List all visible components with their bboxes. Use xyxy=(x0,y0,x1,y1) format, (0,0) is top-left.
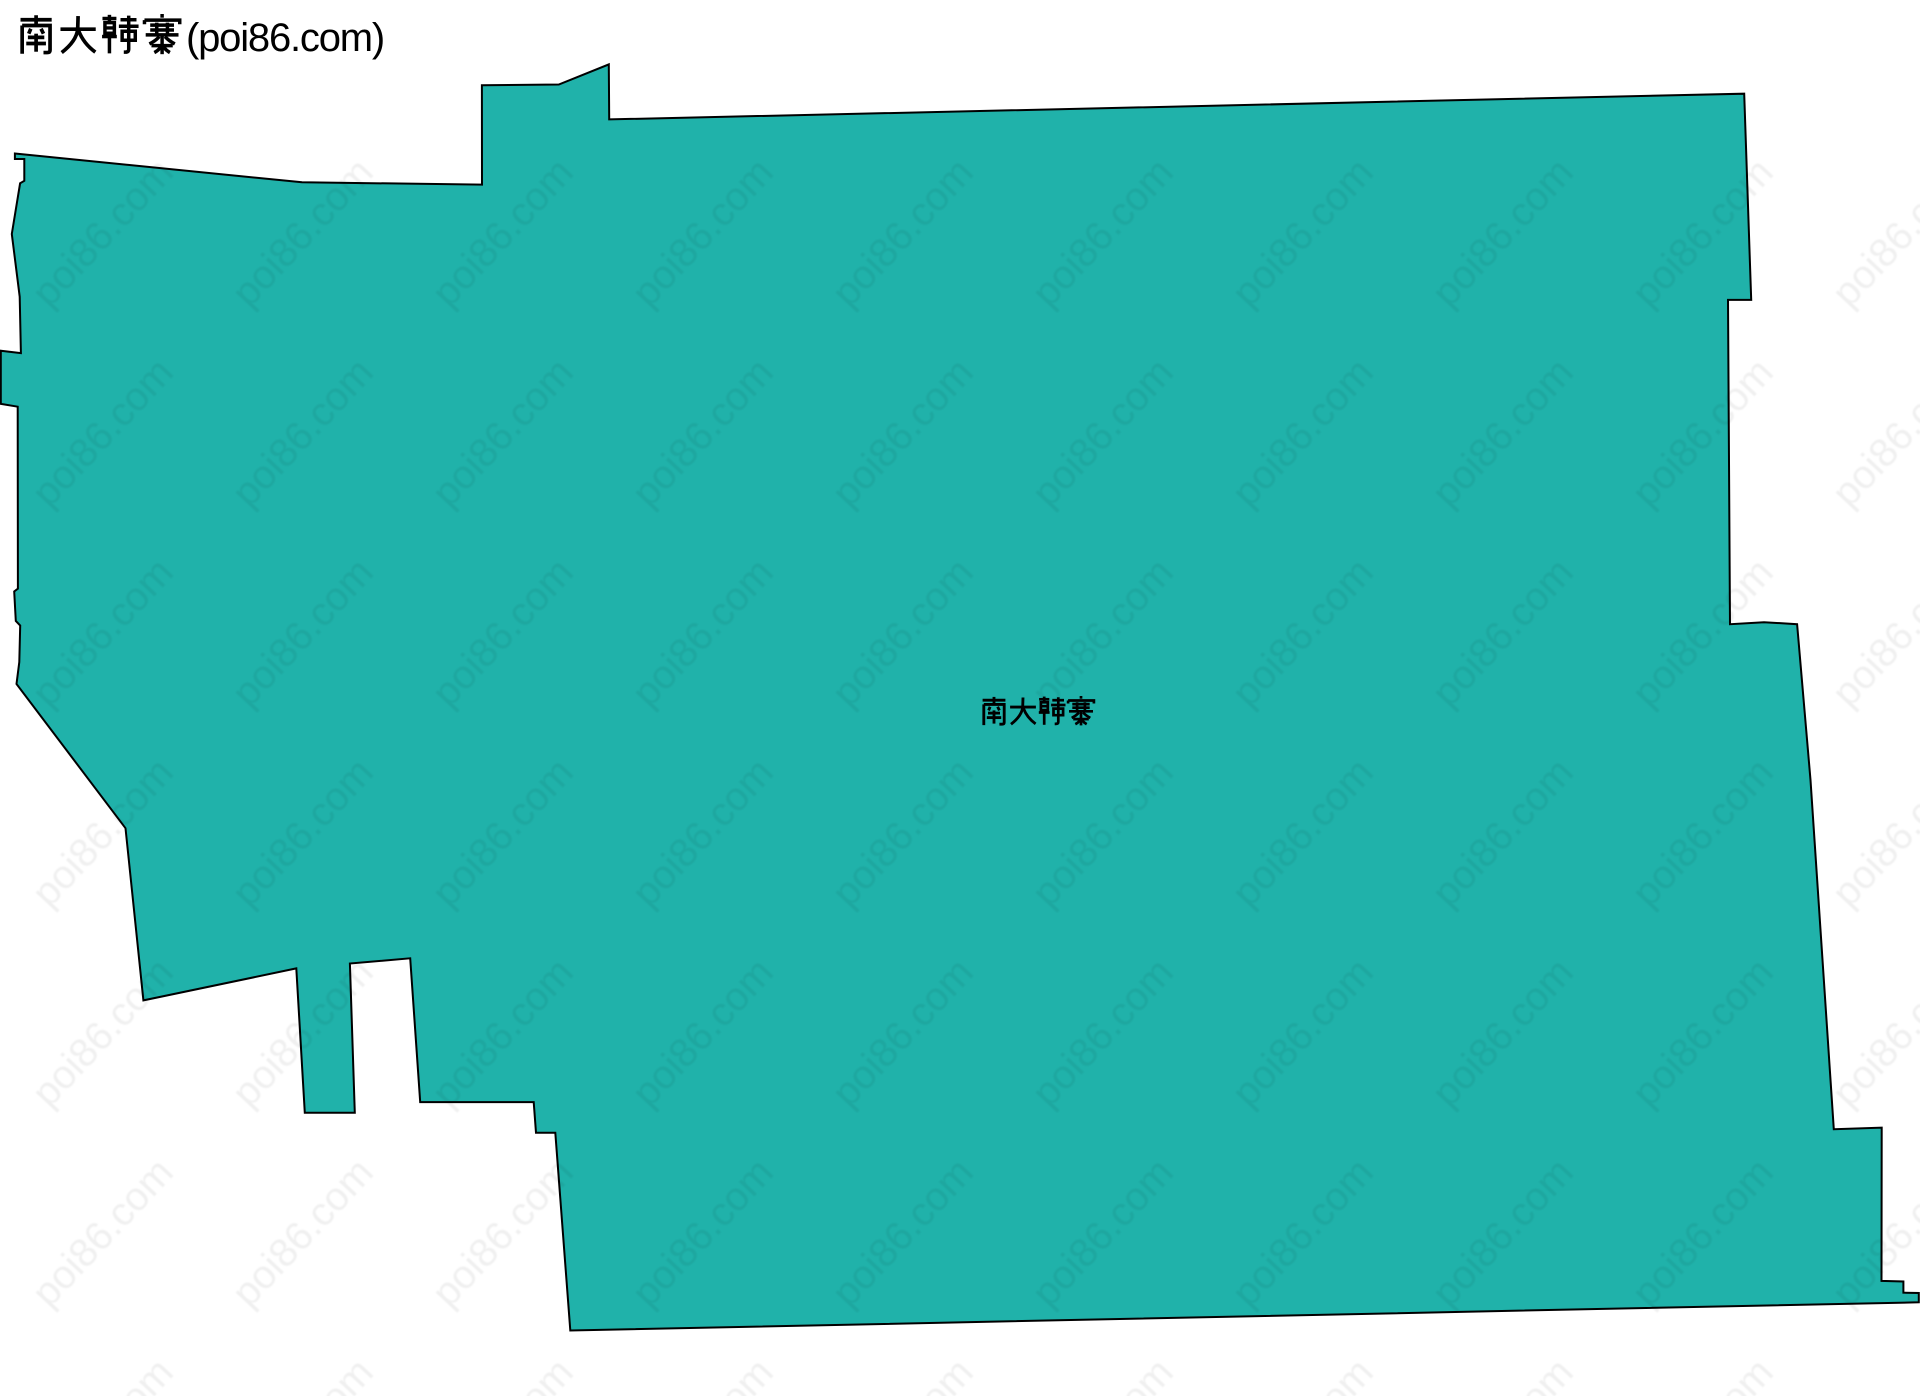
svg-text:poi86.com: poi86.com xyxy=(824,1350,982,1396)
svg-text:poi86.com: poi86.com xyxy=(24,950,182,1115)
svg-text:poi86.com: poi86.com xyxy=(224,1350,382,1396)
svg-text:poi86.com: poi86.com xyxy=(1024,1350,1182,1396)
svg-text:poi86.com: poi86.com xyxy=(1624,1350,1782,1396)
svg-text:poi86.com: poi86.com xyxy=(1424,1350,1582,1396)
svg-text:poi86.com: poi86.com xyxy=(1824,350,1920,515)
svg-text:poi86.com: poi86.com xyxy=(1224,1350,1382,1396)
svg-text:poi86.com: poi86.com xyxy=(24,1150,182,1315)
svg-text:poi86.com: poi86.com xyxy=(1824,150,1920,315)
svg-text:poi86.com: poi86.com xyxy=(1824,550,1920,715)
svg-text:poi86.com: poi86.com xyxy=(624,1350,782,1396)
svg-text:poi86.com: poi86.com xyxy=(424,1150,582,1315)
svg-text:poi86.com: poi86.com xyxy=(1824,750,1920,915)
svg-text:poi86.com: poi86.com xyxy=(24,1350,182,1396)
svg-text:poi86.com: poi86.com xyxy=(224,1150,382,1315)
svg-text:poi86.com: poi86.com xyxy=(424,1350,582,1396)
svg-text:poi86.com: poi86.com xyxy=(1824,950,1920,1115)
svg-text:poi86.com: poi86.com xyxy=(1824,1350,1920,1396)
svg-text:(poi86.com): (poi86.com) xyxy=(186,16,384,60)
